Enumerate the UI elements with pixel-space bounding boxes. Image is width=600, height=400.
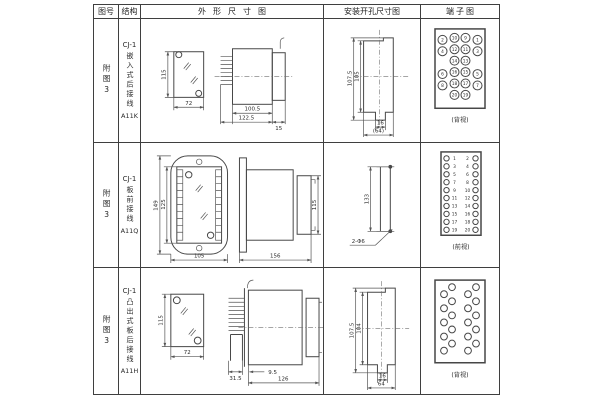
dim-label-width: 105	[194, 254, 204, 260]
terminal-number: 16	[465, 212, 471, 218]
terminal-number: 16	[452, 70, 458, 76]
row1-structure-cell: CJ-1 嵌入式后接线 A11K	[119, 19, 141, 143]
dim-label-height: 115	[159, 315, 165, 326]
row2-structure-cell: CJ-1 板前接线 A11Q	[119, 143, 141, 268]
row1-fig-label: 附图3	[102, 64, 110, 97]
terminal-circles-rear: 10 12 14 16 18 20 9 11 13 15 17 19 2 4 6…	[438, 33, 482, 99]
dim-label-inner-h: 104	[356, 323, 362, 334]
terminal-number: 17	[463, 81, 469, 87]
row3-outline-cell: 115 72 31.5 9.5 126	[141, 268, 324, 394]
header-terminal-label: 端子图	[444, 6, 476, 17]
terminal-number: 3	[453, 164, 456, 170]
terminal-number: 7	[476, 83, 479, 89]
terminal-number: 8	[441, 83, 444, 89]
row1-fig-cell: 附图3	[94, 19, 119, 143]
terminal-number: 8	[466, 180, 469, 186]
dim-label-slot-w: 16	[377, 121, 384, 127]
header-structure: 结构	[119, 5, 141, 19]
row1-install-drawing: 107.5 105 16 (64)	[324, 19, 420, 142]
terminal-number: 18	[452, 81, 458, 87]
dim-label-outer-h: 107.5	[348, 71, 354, 87]
dim-label-plug-len: 31.5	[229, 376, 242, 382]
terminal-number: 11	[452, 196, 458, 202]
row3-outline-drawing: 115 72 31.5 9.5 126	[141, 268, 323, 394]
terminal-number: 12	[465, 196, 471, 202]
header-outline-dims: 外形尺寸图	[141, 5, 324, 19]
wiring-hook	[247, 280, 253, 288]
dim-label-total-len: 126	[278, 376, 289, 382]
row3-model: CJ-1	[123, 287, 137, 295]
dim-label-inner-h: 105	[354, 71, 360, 81]
hatch-mark	[196, 185, 203, 192]
row2-install-drawing: 133 2-Φ6	[324, 143, 420, 267]
terminal-circles-front: 1 2 3 4 5 6 7 8 9 10 11 12	[444, 156, 478, 234]
row3-fig-label: 附图3	[102, 315, 110, 348]
row1-outline-cell: 115 72 100.5 122.5 15	[141, 19, 324, 143]
terminal-number: 13	[463, 58, 469, 64]
terminal-number: 2	[441, 38, 444, 44]
header-fig-number: 图号	[94, 5, 119, 19]
row2-model: CJ-1	[123, 175, 137, 183]
dim-label-side-h: 115	[312, 200, 318, 210]
terminal-number: 4	[441, 49, 444, 55]
terminal-number: 6	[466, 172, 469, 178]
hatch-mark	[181, 307, 188, 315]
dim-label-rear-len: 15	[275, 126, 282, 132]
terminal-comb	[229, 298, 245, 330]
row1-model: CJ-1	[123, 41, 137, 49]
row2-structure-desc: 板前接线	[126, 186, 133, 224]
header-structure-label: 结构	[122, 6, 138, 17]
dim-label-length: 156	[270, 254, 281, 260]
view-label-rear: (背视)	[451, 371, 468, 379]
terminal-number: 4	[466, 164, 469, 170]
terminal-number: 14	[452, 58, 458, 64]
row3-structure-cell: CJ-1 凸出式板后接线 A11H	[119, 268, 141, 394]
row3-terminal-drawing: (背视)	[421, 268, 499, 394]
row1-terminal-cell: 10 12 14 16 18 20 9 11 13 15 17 19 2 4 6…	[421, 19, 499, 143]
row2-terminal-drawing: 1 2 3 4 5 6 7 8 9 10 11 12	[421, 143, 499, 267]
dim-label-width: 72	[184, 350, 191, 356]
dim-label-hole-dist: 133	[364, 193, 370, 204]
hatch-mark	[189, 328, 196, 336]
row1-type-code: A11K	[121, 112, 138, 120]
terminal-number: 15	[452, 212, 458, 218]
row3-type-code: A11H	[121, 367, 139, 375]
terminal-number: 5	[453, 172, 456, 178]
terminal-number: 20	[452, 93, 458, 99]
terminal-number: 6	[441, 72, 444, 78]
terminal-number: 19	[463, 93, 469, 99]
terminal-number: 18	[465, 220, 471, 226]
terminal-number: 20	[465, 228, 471, 234]
header-install-holes: 安装开孔尺寸图	[324, 5, 421, 19]
dim-label-outer-h: 149	[154, 200, 160, 211]
header-terminal-diagram: 端子图	[421, 5, 499, 19]
dim-label-inner-h: 125	[161, 199, 167, 209]
row2-install-cell: 133 2-Φ6	[324, 143, 421, 268]
row3-fig-cell: 附图3	[94, 268, 119, 394]
terminal-number: 7	[453, 180, 456, 186]
dim-label-offset: 9.5	[268, 370, 277, 376]
row3-install-cell: 107.5 104 16 64	[324, 268, 421, 394]
dim-label-body-len: 100.5	[245, 107, 261, 113]
terminal-number: 19	[452, 228, 458, 234]
hatch-mark	[184, 63, 191, 70]
terminal-number: 9	[453, 188, 456, 194]
terminal-circles-rear-staggered	[441, 284, 480, 354]
view-label-rear: (背视)	[451, 116, 468, 124]
dim-label-total-len: 122.5	[239, 116, 255, 122]
terminal-number: 1	[453, 156, 456, 162]
terminal-number: 13	[452, 204, 458, 210]
dim-label-outer-h: 107.5	[350, 322, 356, 338]
row2-fig-cell: 附图3	[94, 143, 119, 268]
row2-outline-cell: 149 125 105 156 115	[141, 143, 324, 268]
header-outline-label: 外形尺寸图	[191, 6, 273, 17]
terminal-strip-right	[216, 177, 222, 233]
row2-outline-drawing: 149 125 105 156 115	[141, 143, 323, 267]
wiring-hook	[280, 38, 284, 49]
terminal-number: 3	[476, 49, 479, 55]
terminal-number: 14	[465, 204, 471, 210]
row1-terminal-drawing: 10 12 14 16 18 20 9 11 13 15 17 19 2 4 6…	[421, 19, 499, 142]
view-label-front: (前视)	[452, 243, 469, 251]
terminal-number: 11	[463, 47, 469, 53]
hatch-mark	[191, 77, 198, 84]
terminal-number: 12	[452, 47, 458, 53]
terminal-number: 15	[463, 70, 469, 76]
dim-label-width: 72	[185, 101, 192, 107]
dim-label-slot-w: 16	[379, 373, 386, 379]
terminal-number: 17	[452, 220, 458, 226]
row1-outline-drawing: 115 72 100.5 122.5 15	[141, 19, 323, 142]
header-install-label: 安装开孔尺寸图	[344, 6, 400, 17]
row3-structure-desc: 凸出式板后接线	[126, 298, 133, 365]
manual-page: 图号 结构 外形尺寸图 安装开孔尺寸图 端子图 附图3 CJ-1 嵌入式后接线 …	[0, 0, 600, 400]
terminal-strip-left	[177, 177, 183, 233]
row1-install-cell: 107.5 105 16 (64)	[324, 19, 421, 143]
hole-spec-label: 2-Φ6	[352, 239, 366, 245]
row2-fig-label: 附图3	[102, 189, 110, 222]
terminal-number: 10	[452, 36, 458, 42]
row1-structure-desc: 嵌入式后接线	[126, 52, 133, 109]
row3-terminal-cell: (背视)	[421, 268, 499, 394]
row2-terminal-cell: 1 2 3 4 5 6 7 8 9 10 11 12	[421, 143, 499, 268]
terminal-number: 5	[476, 72, 479, 78]
terminal-number: 10	[465, 188, 471, 194]
terminal-comb	[221, 57, 233, 85]
hatch-mark	[201, 212, 208, 219]
header-fig-label: 图号	[98, 6, 114, 17]
dim-label-total-w: (64)	[373, 129, 384, 135]
dim-label-total-w: 64	[378, 381, 385, 387]
terminal-number: 9	[464, 36, 467, 42]
row3-install-drawing: 107.5 104 16 64	[324, 268, 420, 394]
terminal-number: 2	[466, 156, 469, 162]
dim-label-height: 115	[161, 69, 167, 79]
row2-type-code: A11Q	[121, 227, 139, 235]
terminal-number: 1	[476, 38, 479, 44]
relay-drawing-table: 图号 结构 外形尺寸图 安装开孔尺寸图 端子图 附图3 CJ-1 嵌入式后接线 …	[93, 4, 500, 395]
